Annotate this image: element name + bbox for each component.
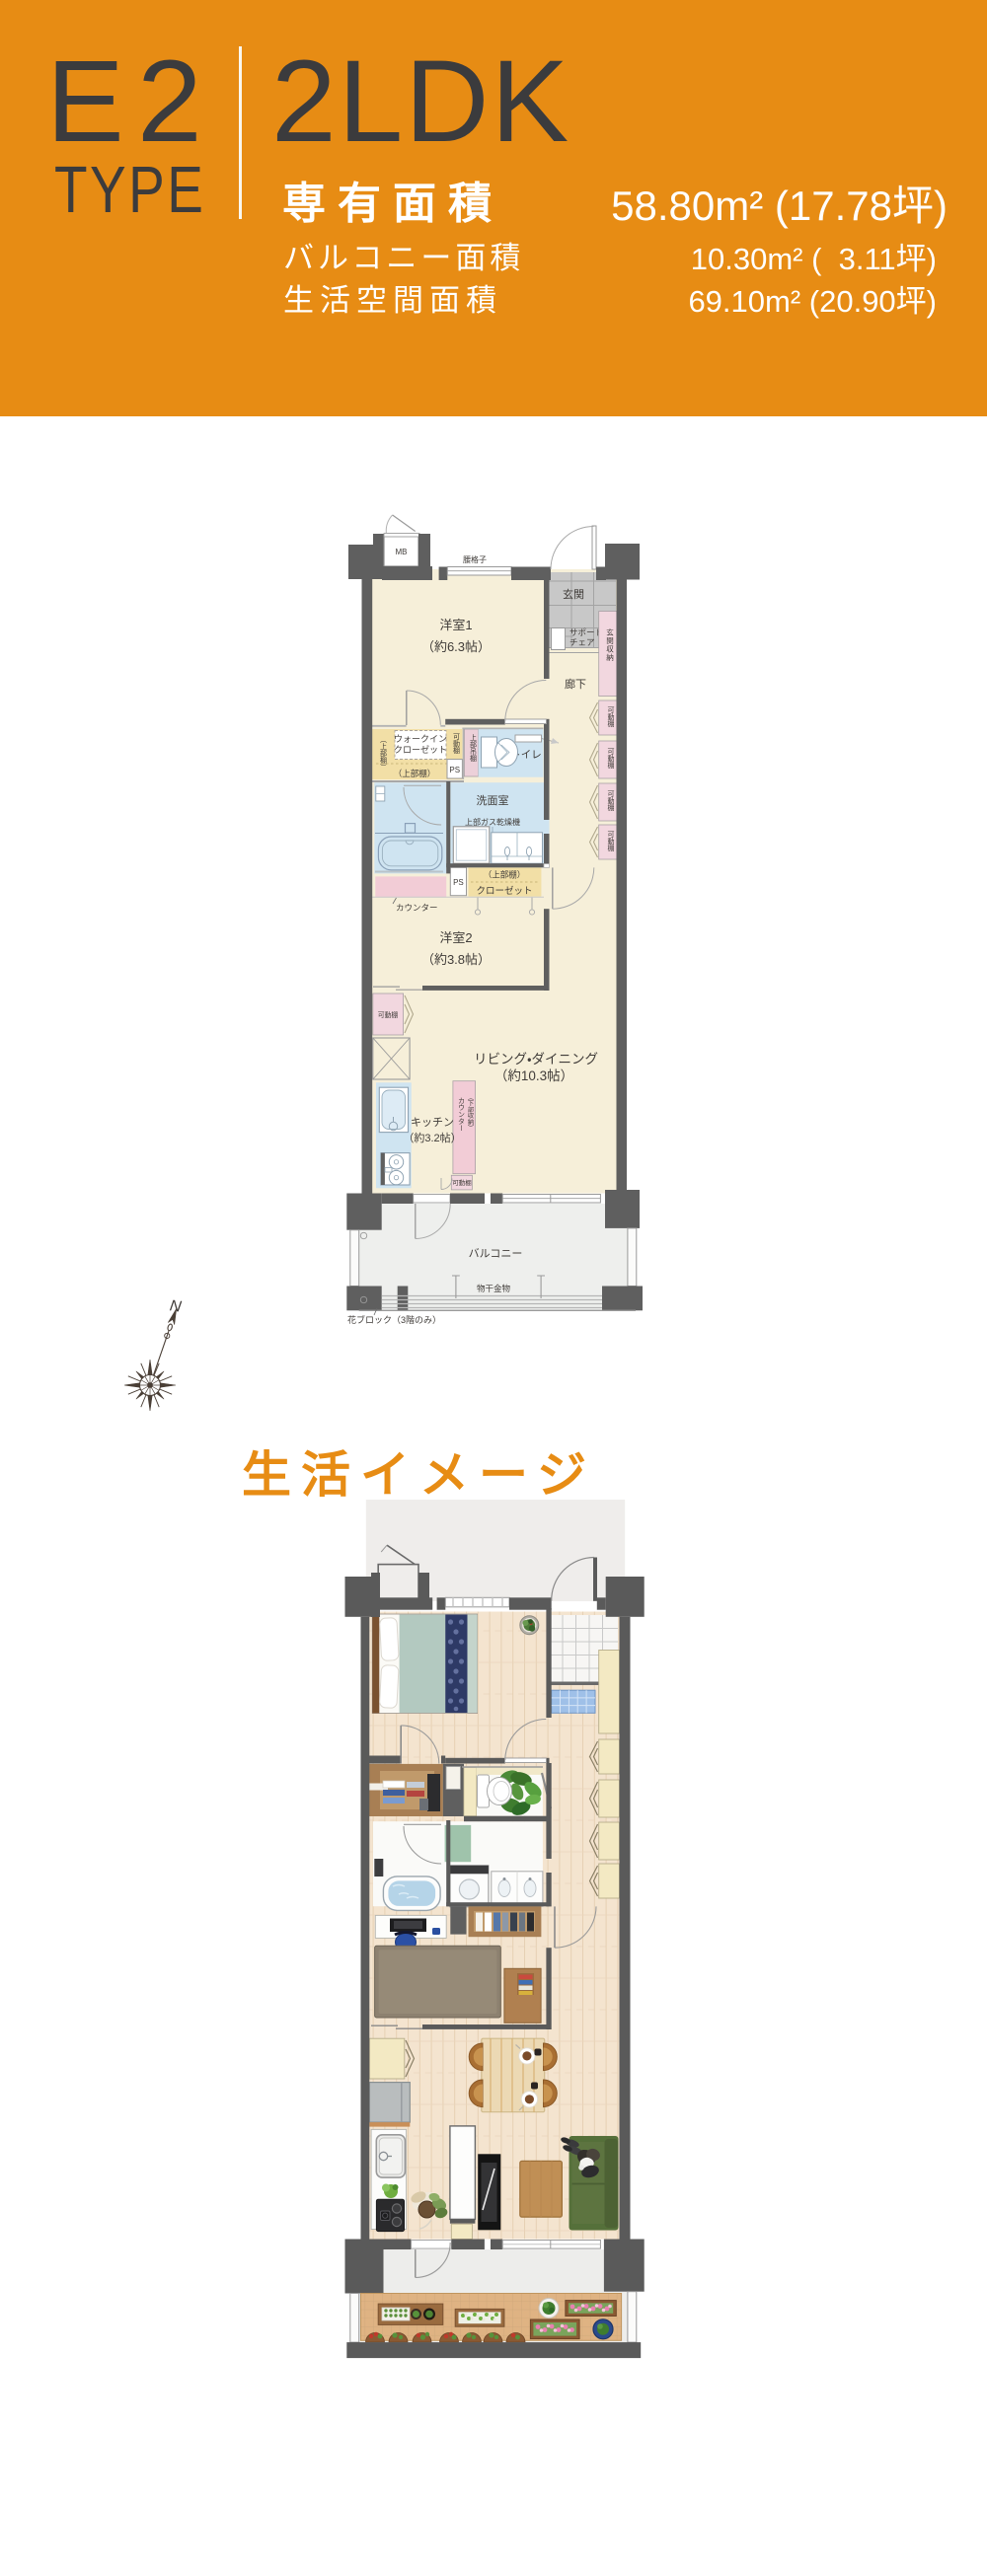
svg-text:洋室2: 洋室2: [439, 930, 472, 945]
svg-text:可動棚: 可動棚: [378, 1010, 399, 1019]
svg-text:花ブロック（3階のみ）: 花ブロック（3階のみ）: [347, 1314, 441, 1325]
svg-text:上部ガス乾燥機: 上部ガス乾燥機: [465, 817, 520, 827]
svg-text:PS: PS: [449, 766, 460, 774]
svg-text:MB: MB: [396, 548, 408, 556]
svg-text:（下部収納）: （下部収納）: [467, 1094, 474, 1131]
svg-text:（約3.8帖）: （約3.8帖）: [421, 952, 491, 967]
svg-text:可動棚: 可動棚: [453, 733, 461, 755]
svg-text:洗面室: 洗面室: [477, 794, 509, 807]
svg-text:キッチン: キッチン: [411, 1116, 454, 1129]
svg-text:（上部棚）: （上部棚）: [394, 769, 436, 778]
svg-text:可動棚: 可動棚: [607, 706, 615, 728]
svg-text:（約10.3帖）: （約10.3帖）: [494, 1068, 573, 1083]
svg-text:ウォークイン: ウォークイン: [394, 734, 447, 744]
svg-text:サポート: サポート: [569, 627, 603, 637]
svg-text:可動棚: 可動棚: [452, 1178, 472, 1187]
svg-text:（約3.2帖）: （約3.2帖）: [403, 1131, 461, 1144]
svg-text:カウンター: カウンター: [458, 1097, 466, 1132]
svg-text:廊下: 廊下: [565, 677, 586, 691]
svg-text:（約6.3帖）: （約6.3帖）: [421, 639, 491, 654]
svg-text:物干金物: 物干金物: [477, 1284, 511, 1293]
svg-text:クローゼット: クローゼット: [476, 885, 532, 897]
svg-text:可動棚: 可動棚: [607, 831, 615, 852]
svg-text:玄関: 玄関: [563, 588, 584, 601]
svg-text:（上部棚）: （上部棚）: [380, 736, 388, 771]
svg-text:可動棚: 可動棚: [607, 790, 615, 812]
svg-text:PS: PS: [453, 878, 464, 887]
svg-text:（上部棚）: （上部棚）: [484, 870, 526, 880]
svg-text:N: N: [169, 1297, 183, 1316]
svg-text:クローゼット: クローゼット: [394, 744, 447, 755]
svg-text:リビング・ダイニング: リビング・ダイニング: [474, 1052, 598, 1067]
svg-text:腰格子: 腰格子: [463, 554, 487, 564]
svg-text:カウンター: カウンター: [396, 903, 438, 913]
svg-text:チェア: チェア: [569, 637, 595, 647]
svg-text:洋室1: 洋室1: [439, 618, 472, 632]
svg-text:上部吊棚: 上部吊棚: [470, 733, 478, 763]
svg-text:玄関収納: 玄関収納: [605, 627, 614, 663]
svg-text:可動棚: 可動棚: [607, 748, 615, 770]
svg-text:バルコニー: バルコニー: [469, 1247, 523, 1260]
